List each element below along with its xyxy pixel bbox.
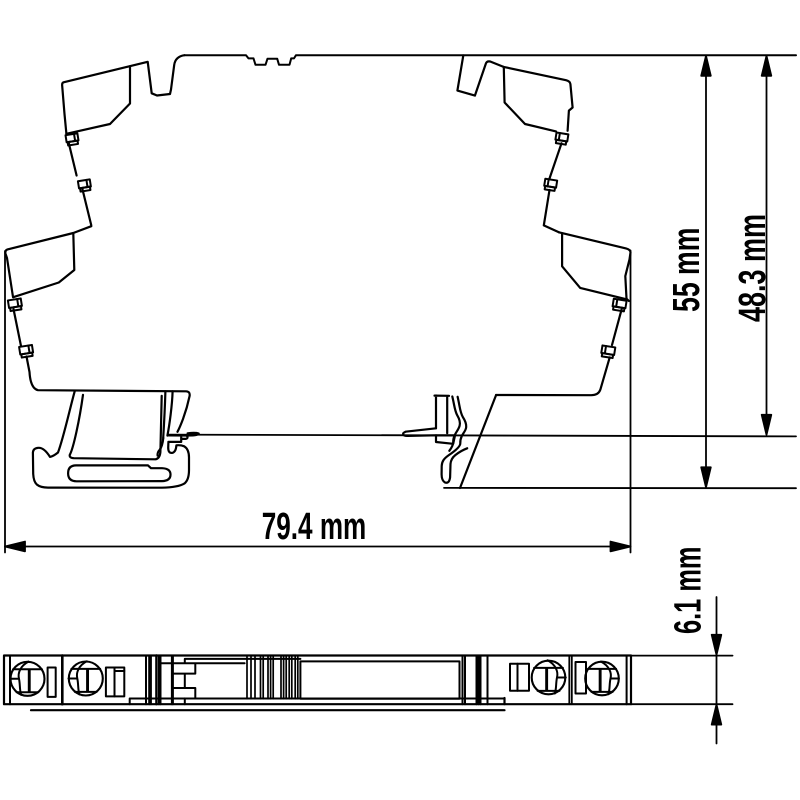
svg-text:55 mm: 55 mm (666, 228, 708, 312)
svg-text:6.1 mm: 6.1 mm (667, 547, 709, 635)
svg-text:48.3 mm: 48.3 mm (732, 214, 774, 322)
svg-text:79.4 mm: 79.4 mm (262, 506, 367, 548)
